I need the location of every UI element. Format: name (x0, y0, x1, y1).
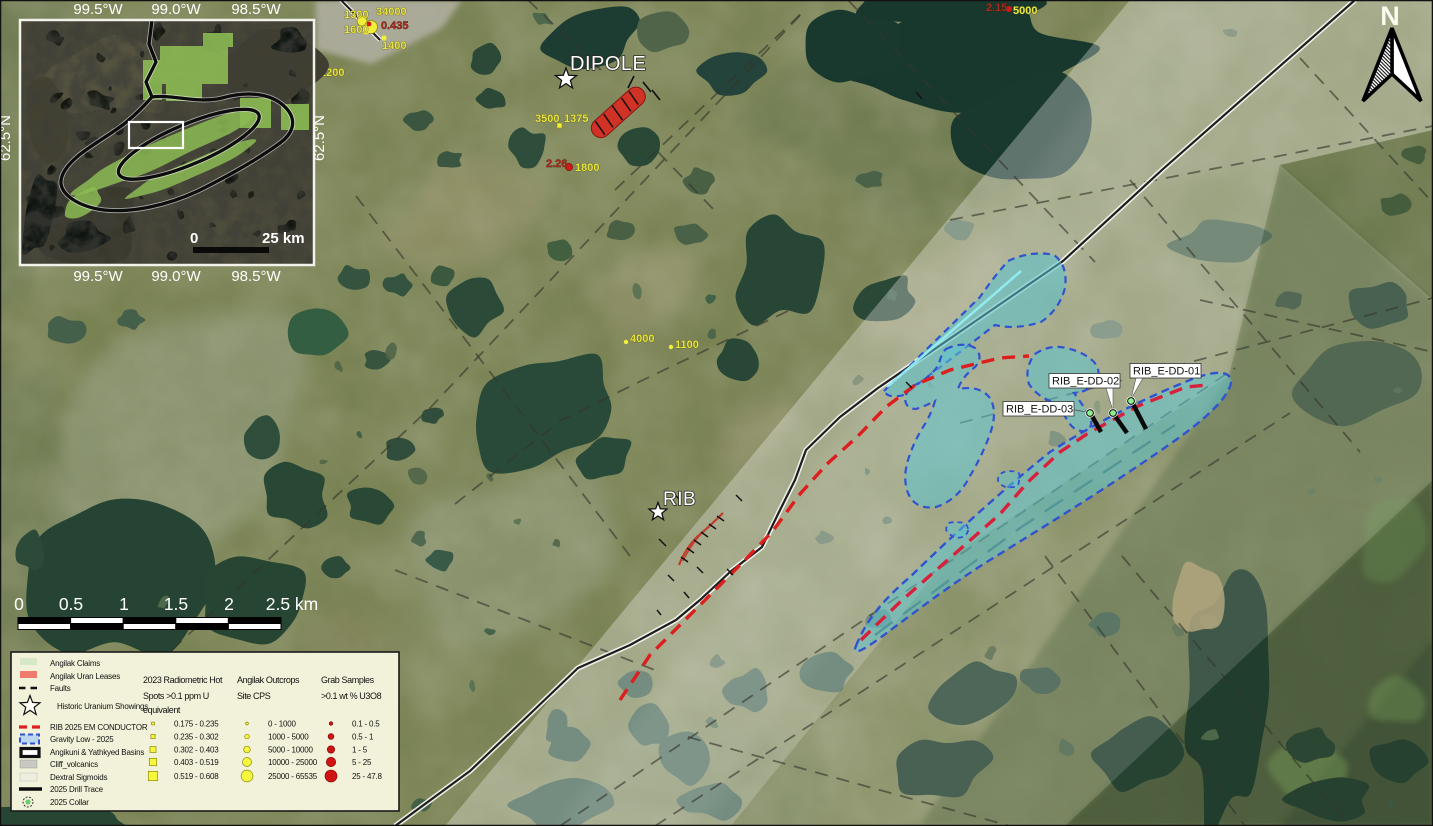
svg-text:0 - 1000: 0 - 1000 (268, 720, 297, 729)
svg-text:RIB_E-DD-01: RIB_E-DD-01 (1133, 366, 1200, 378)
svg-text:Site CPS: Site CPS (237, 691, 271, 701)
svg-text:1 - 5: 1 - 5 (352, 746, 368, 755)
svg-text:0: 0 (190, 230, 198, 247)
svg-text:0.5: 0.5 (59, 594, 83, 614)
svg-text:0.519 - 0.608: 0.519 - 0.608 (174, 772, 219, 781)
svg-text:0.1 - 0.5: 0.1 - 0.5 (352, 720, 380, 729)
svg-text:Grab Samples: Grab Samples (321, 675, 375, 685)
svg-text:1800: 1800 (575, 162, 599, 174)
svg-text:Angilak Outcrops: Angilak Outcrops (237, 675, 300, 685)
svg-text:25 - 47.8: 25 - 47.8 (352, 772, 383, 781)
svg-text:1600: 1600 (344, 24, 368, 36)
svg-text:25 km: 25 km (262, 230, 305, 247)
svg-text:Faults: Faults (50, 684, 71, 693)
svg-text:RIB_E-DD-03: RIB_E-DD-03 (1006, 404, 1073, 416)
svg-text:RIB: RIB (663, 489, 696, 510)
svg-text:2023 Radiometric Hot: 2023 Radiometric Hot (143, 675, 223, 685)
svg-text:99.5°W: 99.5°W (73, 268, 123, 285)
svg-text:>0.1 wt % U3O8: >0.1 wt % U3O8 (321, 691, 382, 701)
svg-text:1375: 1375 (564, 113, 588, 125)
svg-text:N: N (1380, 1, 1400, 31)
svg-text:DIPOLE: DIPOLE (570, 53, 646, 75)
svg-text:99.5°W: 99.5°W (73, 1, 123, 18)
svg-text:0.403 - 0.519: 0.403 - 0.519 (174, 758, 219, 767)
svg-text:0.302 - 0.403: 0.302 - 0.403 (174, 746, 219, 755)
svg-text:RIB_E-DD-02: RIB_E-DD-02 (1052, 376, 1119, 388)
svg-text:2: 2 (224, 594, 234, 614)
svg-text:62.5°N: 62.5°N (0, 115, 14, 161)
svg-text:5000 - 10000: 5000 - 10000 (268, 746, 314, 755)
svg-text:RIB 2025 EM CONDUCTOR: RIB 2025 EM CONDUCTOR (50, 723, 148, 732)
svg-text:equivalent: equivalent (143, 705, 181, 715)
svg-text:3500: 3500 (535, 113, 559, 125)
svg-text:2.26: 2.26 (546, 158, 567, 170)
svg-text:Dextral Sigmoids: Dextral Sigmoids (50, 773, 107, 782)
svg-text:2.15: 2.15 (986, 2, 1007, 14)
svg-text:Angilak Claims: Angilak Claims (50, 659, 100, 668)
svg-text:4000: 4000 (630, 333, 654, 345)
svg-text:1400: 1400 (382, 40, 406, 52)
svg-text:1000 - 5000: 1000 - 5000 (268, 733, 309, 742)
svg-text:2025 Drill Trace: 2025 Drill Trace (50, 785, 104, 794)
svg-text:Historic Uranium Showings: Historic Uranium Showings (57, 702, 148, 711)
svg-text:99.0°W: 99.0°W (151, 1, 201, 18)
svg-text:Angikuni & Yathkyed Basins: Angikuni & Yathkyed Basins (50, 748, 144, 757)
svg-text:1100: 1100 (675, 339, 699, 351)
svg-text:62.5°N: 62.5°N (311, 115, 328, 161)
svg-text:1: 1 (119, 594, 129, 614)
svg-text:0.435: 0.435 (381, 20, 409, 32)
svg-text:5000: 5000 (1013, 5, 1037, 17)
svg-text:Gravity Low - 2025: Gravity Low - 2025 (50, 735, 114, 744)
svg-text:0.5 - 1: 0.5 - 1 (352, 733, 374, 742)
svg-text:25000 - 65535: 25000 - 65535 (268, 772, 318, 781)
svg-text:0: 0 (14, 594, 24, 614)
svg-text:2025 Collar: 2025 Collar (50, 798, 89, 807)
svg-text:1.5: 1.5 (164, 594, 188, 614)
svg-text:98.5°W: 98.5°W (231, 268, 281, 285)
svg-text:99.0°W: 99.0°W (151, 268, 201, 285)
svg-text:2.5 km: 2.5 km (266, 594, 319, 614)
svg-text:Angilak Uran Leases: Angilak Uran Leases (50, 672, 120, 681)
svg-text:98.5°W: 98.5°W (231, 1, 281, 18)
svg-text:10000 - 25000: 10000 - 25000 (268, 758, 318, 767)
svg-text:1300: 1300 (344, 9, 368, 21)
svg-text:0.175 - 0.235: 0.175 - 0.235 (174, 720, 219, 729)
svg-text:34000: 34000 (376, 6, 407, 18)
svg-text:5 - 25: 5 - 25 (352, 758, 372, 767)
svg-text:Spots >0.1 ppm U: Spots >0.1 ppm U (143, 691, 209, 701)
svg-text:Cliff_volcanics: Cliff_volcanics (50, 760, 98, 769)
svg-text:0.235 - 0.302: 0.235 - 0.302 (174, 733, 219, 742)
